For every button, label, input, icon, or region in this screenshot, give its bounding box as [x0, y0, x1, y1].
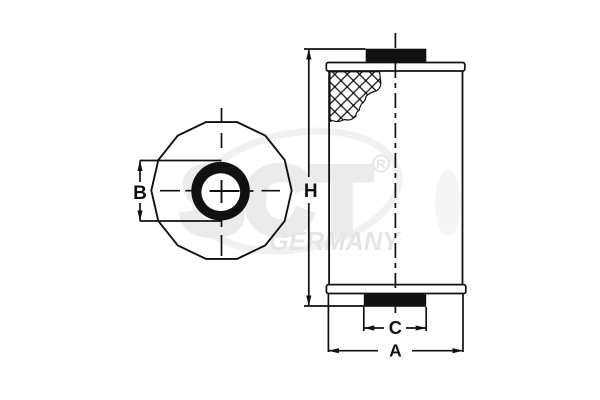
svg-text:GERMANY: GERMANY: [269, 228, 401, 256]
svg-text:H: H: [304, 181, 318, 202]
svg-text:B: B: [133, 183, 147, 204]
svg-text:A: A: [389, 341, 402, 361]
svg-text:R: R: [376, 156, 386, 171]
svg-text:C: C: [389, 318, 402, 338]
